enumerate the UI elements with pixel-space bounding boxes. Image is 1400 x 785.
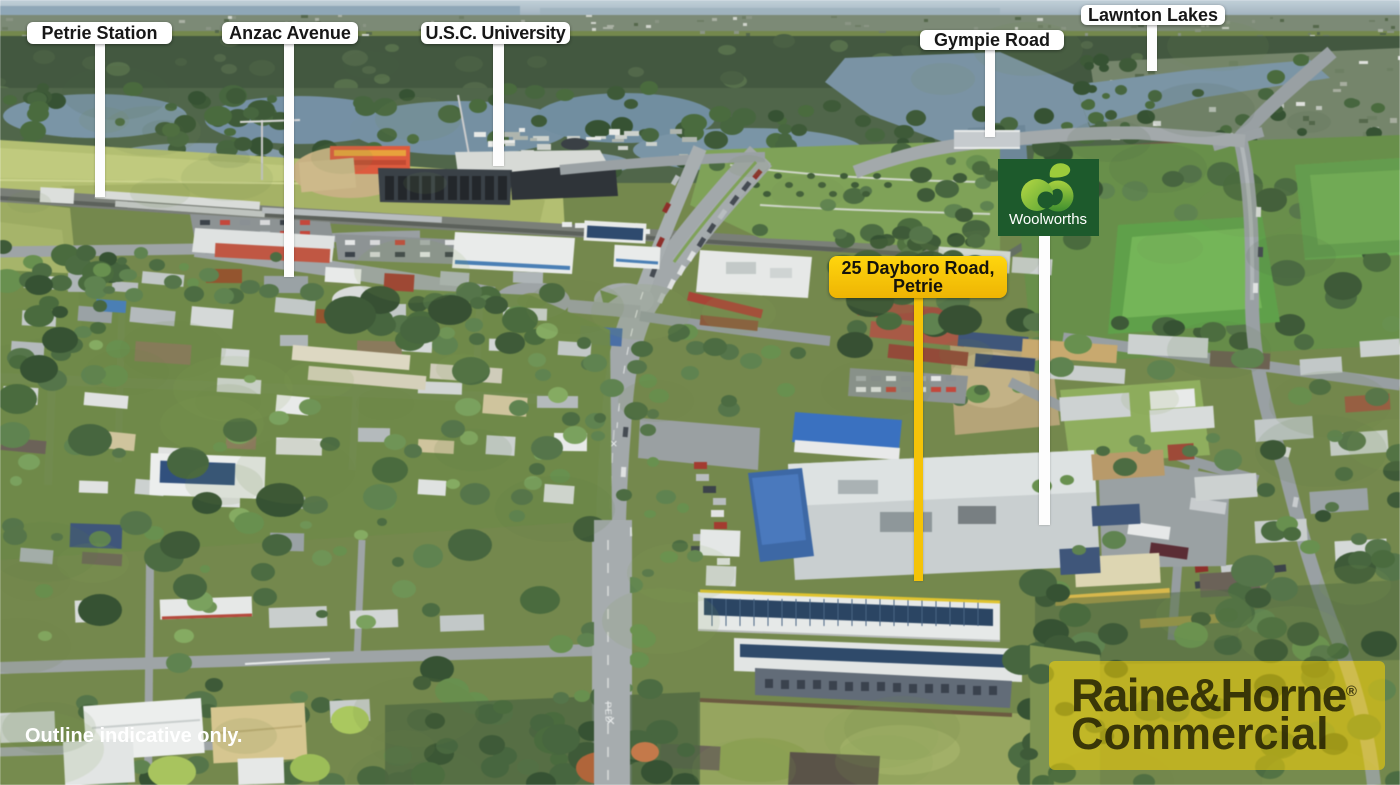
svg-text:Woolworths: Woolworths xyxy=(1009,211,1087,228)
svg-text:PED: PED xyxy=(603,702,614,724)
